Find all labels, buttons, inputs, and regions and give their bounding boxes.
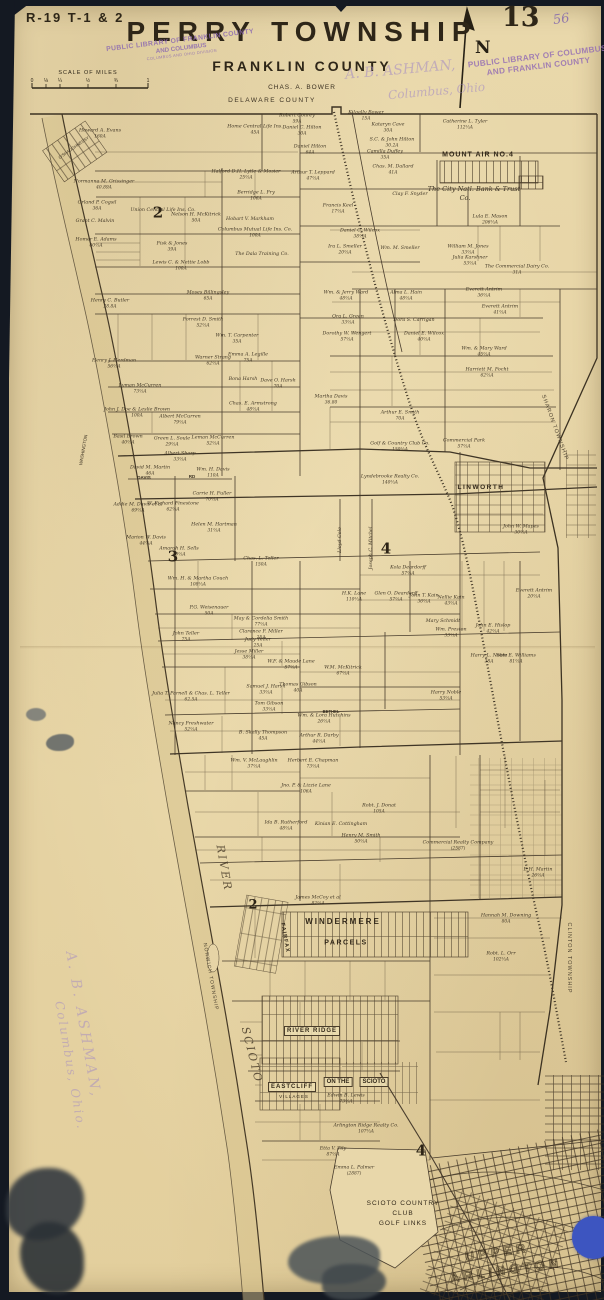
parcel-label: Chas. E. Armstrong48⅔A [229,401,277,412]
parcel-label: Kinian E. Cottingham [315,822,367,828]
place-label: EASTCLIFF [268,1082,316,1092]
parcel-label: Lula E. Mason206⅔A [473,214,508,225]
parcel-label: William M. Jones33⅔A [447,244,488,255]
parcel-label: Jno. P. & Lizzie Lane106A [281,783,331,794]
parcel-label: Golf & Country Club Co.150⅔A [370,441,429,452]
parcel-label: The Dala Training Co. [235,252,288,258]
parcel-label: Martha Davis36.80 [315,394,348,405]
scanned-map-photo: R-19 T-1 & 2 PERRY TOWNSHIP FRANKLIN COU… [0,0,604,1300]
parcel-label: Home Central Life Ins.45A [227,124,283,135]
road-label: WASHINGTON [79,434,89,465]
parcel-label: Emma L. Palmer(2887) [334,1165,374,1176]
road-label: DAVIS [137,476,150,481]
parcel-label: Arlington Ridge Realty Co.107⅔A [333,1123,398,1134]
parcel-label: Dora S. Carrigan [393,318,434,324]
parcel-label: James McCoy et al82⅔A [295,895,340,906]
parcel-label: Chas. L. Teller150A [243,556,278,567]
parcel-label: Nancy Freshwater52⅓A [168,721,213,732]
parcel-label: Helen M. Hartman31⅔A [191,522,237,533]
parcel-label: W.F. & Maude Lane57⅓A [267,659,314,670]
parcel-label: Tom Gibson33⅓A [255,701,284,712]
road-label: O'SHAUGHNESSY [58,136,90,160]
parcel-label: Etta V. Tily87⅔A [320,1146,346,1157]
parcel-label: Basil Brown40⅔A [113,434,142,445]
section-label: 4 [381,542,391,557]
parcel-label: Wm. & Jerry Ward48⅔A [324,290,369,301]
place-label: FAIRFAX [279,923,290,954]
script-label: The City Natl. Bank & Trust [428,186,521,193]
parcel-label: Daniel Hilton64A [294,144,326,155]
script-label: Co. [460,195,471,202]
place-label: VILLAGES [279,1095,309,1100]
parcel-label: P.G. Weisenauer50A [190,605,229,616]
place-label: CLUB [392,1211,413,1218]
parcel-label: Kataryn Cave30A [372,122,405,133]
parcel-label: Nellie Kain43⅔A [437,595,464,606]
parcel-label: Henry J. Herdman56⅔A [92,358,136,369]
boundary-label: SHARON TOWNSHIP [540,394,569,461]
parcel-label: S.C. & John Hilton30.2A [370,137,415,148]
parcel-label: Fisk & Jones39A [157,241,188,252]
parcel-label: Emma A. Legille75A [228,352,268,363]
parcel-label: Chas. M. Dallard41A [372,164,413,175]
place-label: SCIOTO [360,1077,389,1087]
parcel-label: Moses Billingsley65A [187,290,229,301]
section-label: 4 [416,1144,426,1159]
place-label: ON THE [324,1077,353,1087]
parcel-label: John T. Kain36⅔A [409,593,438,604]
parcel-label: Henry C. Butler28.8A [91,298,129,309]
parcel-label: Robt. L. Orr102⅔A [486,951,515,962]
parcel-label: Albert McCurren79⅓A [159,414,201,425]
parcel-label: Everett Antrim20⅔A [516,588,552,599]
parcel-label: Commercial Realty Company(2587) [423,840,494,851]
parcel-label: Marion W. Davis44⅔A [126,535,166,546]
parcel-label: Jesse Miller38⅔A [235,649,264,660]
parcel-label: H.K. Lane110⅔A [342,591,366,602]
parcel-label: May & Cordelia Smith77⅓A [234,616,288,627]
parcel-label: Commercial Park57⅔A [443,438,485,449]
parcel-label: Warner Strang62⅔A [195,355,231,366]
place-label: SCIOTO COUNTRY [367,1201,440,1208]
parcel-label: Everett Antrim41⅔A [482,304,518,315]
parcel-label: Francis Keel17⅔A [323,203,353,214]
parcel-label: Kola Deardorff57⅔A [390,565,426,576]
parcel-label: Hobart V. Markham [226,217,274,223]
road-label: BETHEL [323,710,340,714]
parcel-label: Alma L. Hain48⅔A [390,290,422,301]
parcel-label: Amarah H. Sells40⅔A [159,546,199,557]
parcel-label: Sam E. Williams81⅔A [496,653,536,664]
section-label: 2 [153,206,163,221]
river-label: RIVER [215,844,234,892]
parcel-label: Clay F. Snyder [392,192,427,198]
parcel-label: Julia Karshner53⅔A [453,255,488,266]
parcel-label: Wm. V. McLaughlin37⅔A [230,758,277,769]
parcel-label: Wm. H. Davis110A [196,467,229,478]
parcel-label: John W. Mapes30⅔A [503,524,539,535]
place-label: LINWORTH [457,485,504,492]
parcel-label: Albert Sharp33⅔A [164,451,195,462]
parcel-label: Kilgally Bower15A [348,110,384,121]
parcel-label: Green L. Soule29⅔A [154,436,190,447]
parcel-label: Daniel C. Wilcox38⅔A [340,228,380,239]
place-label: WINDERMERE [305,918,381,926]
parcel-label: E.H. Martin26⅔A [524,867,553,878]
parcel-label: Everett Antrim36⅔A [466,287,502,298]
parcel-label: Hannah M. Downing80A [481,913,531,924]
parcel-label: Henry M. Smith50⅔A [342,833,381,844]
parcel-label: Halford D.H. Lytle & Mosier25⅔A [212,169,281,180]
parcel-label: Mary Schmidt [426,619,460,625]
parcel-label: Wm. & Mary Ward45⅔A [461,346,506,357]
parcel-label: Leman McCurren52⅓A [192,435,235,446]
parcel-label: Harriett M. Focht62⅔A [465,367,508,378]
parcel-label: Lyndebrooke Realty Co.140⅔A [361,474,419,485]
parcel-label: Wm. T. Carpenter35A [216,333,259,344]
parcel-label: Robt. J. Donat105A [362,803,396,814]
parcel-label: Arthur T. Leppard47⅔A [291,170,335,181]
parcel-label: Edwin B. Lewis73⅔A [327,1093,365,1104]
parcel-label: Orland P. Cogsil36A [78,200,117,211]
parcel-label: Wm. M. Smeller [380,246,419,252]
parcel-label: Ira L. Smeller20⅔A [328,244,362,255]
parcel-label: Dave O. Harsh70A [260,378,295,389]
ink-blot-small-1 [26,708,46,721]
parcel-label: Daniel C. Hilton30A [283,125,322,136]
parcel-label: Ora L. Green33⅔A [332,314,364,325]
parcel-label: Wm. H. & Martha Couch108⅔A [168,576,228,587]
parcel-label: Ida B. Rutherford48⅔A [265,820,308,831]
parcel-label: Lyman McCurren73⅓A [119,383,162,394]
parcel-label: W. Richard Finestone62⅔A [147,501,199,512]
parcel-label: Berridge L. Fry106A [237,190,275,201]
parcel-label: Dorothy W. Wengert57⅓A [323,331,372,342]
parcel-label: Lloyd Cole [338,527,344,553]
parcel-label: Herbert E. Chapman73⅓A [288,758,339,769]
place-label: MOUNT AIR NO.4 [442,152,514,159]
parcel-label: The Commercial Dairy Co.31A [485,264,549,275]
map-labels-layer: Howard A. Evans160ARobert Conrey59ADanie… [0,0,604,1300]
parcel-label: Nelson H. McKitrick50A [171,212,221,223]
parcel-label: Normanna M. Grissinger40.89A [74,179,135,190]
place-label: GOLF LINKS [379,1221,427,1228]
place-label: PARCELS [324,940,367,947]
parcel-label: Daniel E. Wilcox40⅔A [404,331,444,342]
river-label: SCIOTO [240,1026,265,1085]
parcel-label: John Teller75A [173,631,199,642]
parcel-label: Harry Noble53⅔A [431,690,461,701]
parcel-label: Julia T. Parnell & Chas. L. Teller62.5A [152,691,230,702]
section-label: 3 [168,550,178,565]
parcel-label: Camilla Duffey35A [367,149,403,160]
parcel-label: Columbus Mutual Life Ins. Co.100A [218,227,292,238]
road-label: RD [189,475,196,480]
parcel-label: Forrest D. Smith52⅔A [183,317,223,328]
place-label: RIVER RIDGE [284,1026,340,1036]
parcel-label: Grant C. Malvin [76,219,115,225]
parcel-label: Thomas Gibson40A [279,682,316,693]
parcel-label: Judy Teller25A [245,637,271,648]
parcel-label: John E. Hislop42⅔A [476,623,511,634]
parcel-label: Lewis C. & Nettie Lobb100A [153,260,210,271]
parcel-label: Wm. Preston33⅔A [435,627,466,638]
boundary-label: NORWICH TOWNSHIP [202,943,219,1011]
parcel-label: Arthur E. Smith70A [381,410,420,421]
parcel-label: Carrie H. Fuller70⅔A [193,491,232,502]
parcel-label: Robert Conrey59A [279,113,315,124]
parcel-label: Bona Harsh [229,377,258,383]
parcel-label: W.M. McKitrick67⅓A [324,665,362,676]
section-label: 2 [248,899,257,912]
parcel-label: Catherine L. Tyler112⅔A [443,119,487,130]
parcel-label: Arthur R. Darby44⅓A [299,733,338,744]
parcel-label: Joseph C. Mitchel [369,527,375,570]
parcel-label: Homer E. Adams60⅔A [75,237,116,248]
parcel-label: Wm. & Lora Hutchins26⅔A [297,713,350,724]
boundary-label: CLINTON TOWNSHIP [565,922,571,993]
parcel-label: B. Skelly Thompson45A [239,730,287,741]
